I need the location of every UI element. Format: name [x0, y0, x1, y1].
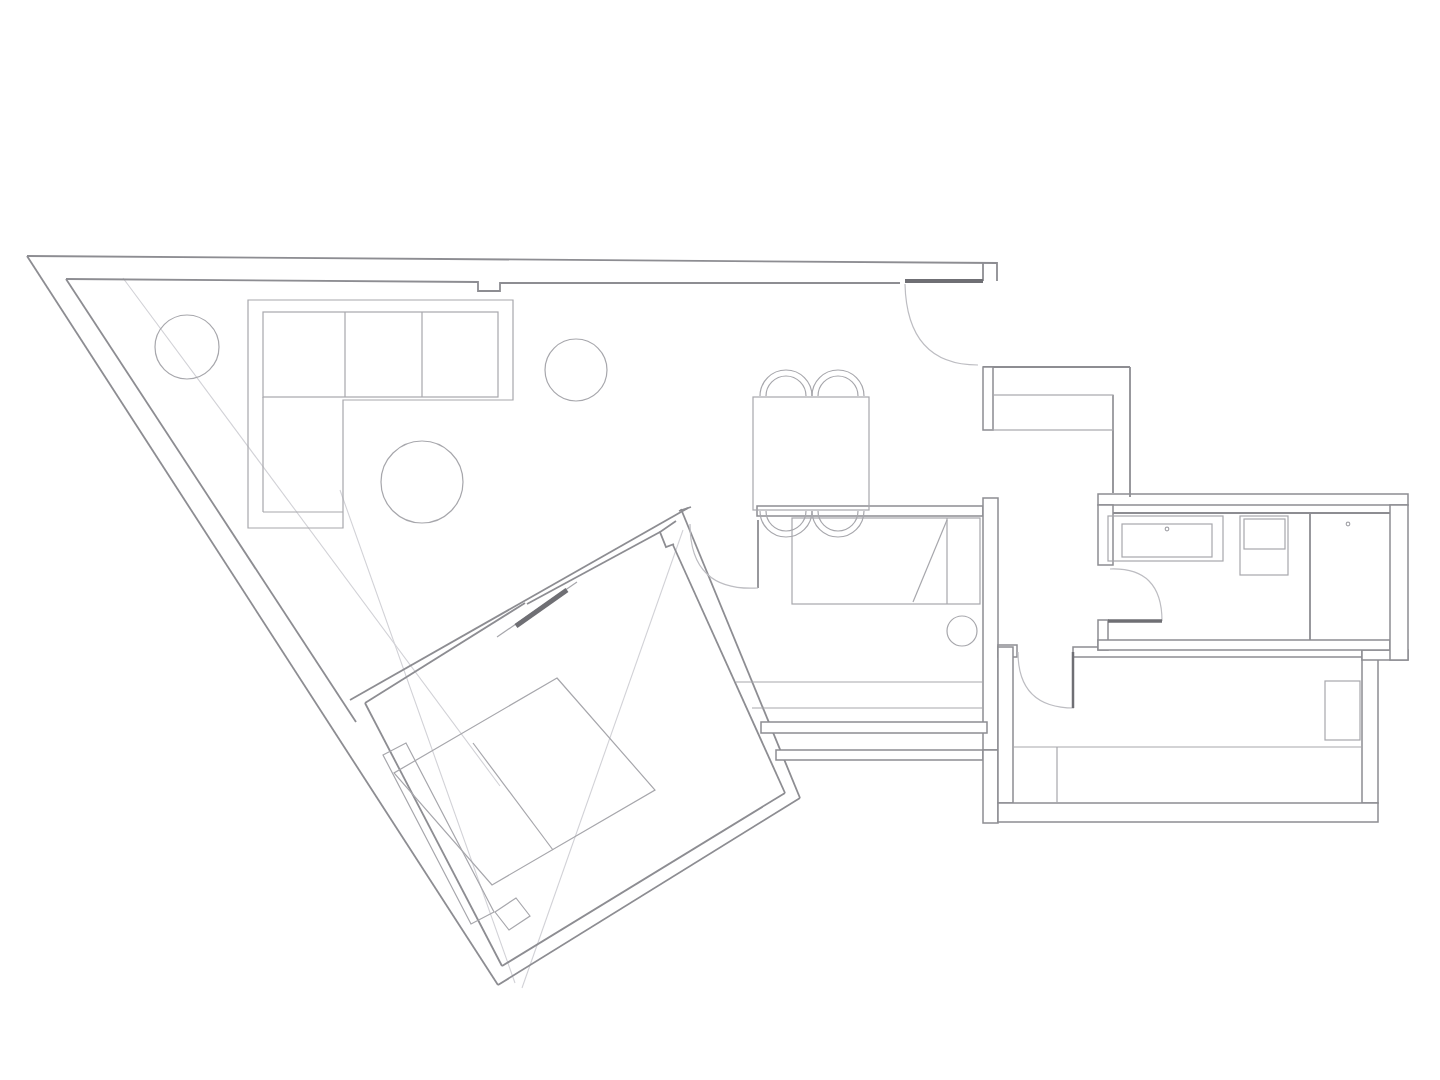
bedroom2-top-wall	[757, 506, 983, 516]
sofa-outline	[248, 300, 513, 528]
bathroom-door-arc	[1110, 569, 1162, 621]
bedroom3-se-wall-inner	[502, 793, 785, 966]
bedroom2-bed	[792, 518, 980, 604]
entry-door-arc	[905, 284, 978, 365]
bathroom-top-wall	[1098, 494, 1408, 505]
bathroom-faucet-dot	[1165, 527, 1169, 531]
exterior-top-wall-inner	[66, 279, 900, 291]
bedroom3-nw-wall-outer	[350, 508, 688, 700]
bedroom1-nightstand	[1325, 681, 1360, 740]
bedroom3-bed	[394, 678, 655, 885]
crease-line-2	[340, 490, 515, 983]
south-exterior-wall	[776, 750, 983, 760]
bedroom2-right-wall	[983, 498, 998, 750]
bedroom3-bed-fold-line	[473, 743, 553, 850]
bedroom3-se-wall-outer	[498, 798, 800, 985]
floor-plan-page	[0, 0, 1440, 1080]
bedroom1-right-wall	[1362, 657, 1378, 803]
dining-table	[753, 397, 869, 510]
bathroom-right-wall	[1390, 505, 1408, 660]
bedroom1-left-wall	[998, 647, 1013, 803]
exterior-top-wall-outer	[27, 256, 997, 281]
bathroom-washer	[1240, 516, 1288, 575]
bathroom-left-wall	[1098, 505, 1113, 565]
bathroom-sink	[1122, 524, 1212, 557]
bathroom-vanity	[1108, 516, 1223, 561]
sofa-seat	[263, 312, 498, 397]
dining-chair-top-2	[812, 370, 864, 396]
bedroom2-stool	[947, 616, 977, 646]
floor-plan	[0, 0, 1440, 1080]
plant-circle-left	[155, 315, 219, 379]
plant-circle-top	[545, 339, 607, 401]
bedroom3-door-notch	[660, 521, 676, 547]
bedroom1-door-arc	[1018, 652, 1074, 708]
dining-chair-top-1	[760, 370, 812, 396]
bathroom-shower-dot	[1346, 522, 1350, 526]
bedroom3-bench	[495, 898, 530, 930]
south-exterior-corner	[983, 750, 998, 823]
bedroom2-bottom-wall	[761, 722, 987, 733]
bedroom2-bed-fold-line	[913, 520, 947, 602]
bedroom3-ne-wall-inner	[673, 545, 785, 793]
entry-closet-left-wall	[983, 367, 993, 430]
coffee-table	[381, 441, 463, 523]
entry-closet-body	[993, 395, 1113, 430]
bedroom1-bottom-wall	[998, 803, 1378, 822]
bedroom3-nw-wall-face	[527, 532, 660, 604]
bedroom3-sw-wall-inner	[365, 703, 502, 966]
bathroom-bottom-wall	[1098, 640, 1390, 650]
bedroom3-nw-wall-inner-lower	[365, 603, 525, 703]
exterior-left-wall-inner	[66, 279, 356, 722]
bathroom-washer-inner	[1244, 519, 1285, 549]
crease-line-1	[123, 278, 500, 786]
